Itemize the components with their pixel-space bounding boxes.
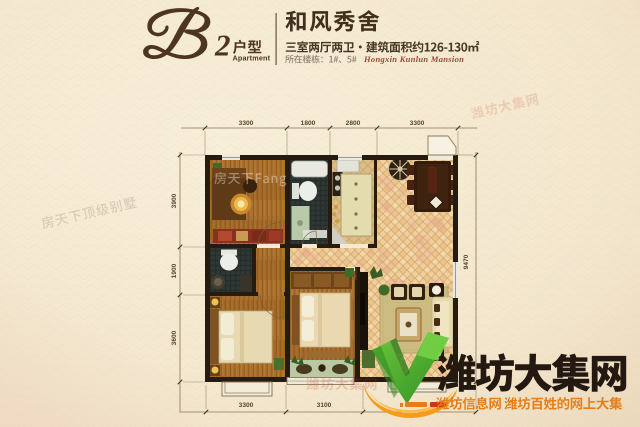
svg-text:1800: 1800 bbox=[301, 120, 316, 127]
svg-text:3300: 3300 bbox=[239, 402, 254, 409]
svg-text:3900: 3900 bbox=[171, 193, 178, 208]
svg-text:3600: 3600 bbox=[171, 330, 178, 345]
svg-text:3100: 3100 bbox=[317, 402, 332, 409]
svg-text:Hongxin Kunlun Mansion: Hongxin Kunlun Mansion bbox=[363, 54, 464, 64]
svg-text:3300: 3300 bbox=[410, 120, 425, 127]
svg-text:Apartment: Apartment bbox=[233, 54, 271, 63]
svg-text:2800: 2800 bbox=[346, 120, 361, 127]
svg-text:1900: 1900 bbox=[171, 263, 178, 278]
svg-text:9470: 9470 bbox=[463, 254, 470, 269]
svg-text:2: 2 bbox=[214, 28, 231, 63]
svg-text:3300: 3300 bbox=[239, 120, 254, 127]
